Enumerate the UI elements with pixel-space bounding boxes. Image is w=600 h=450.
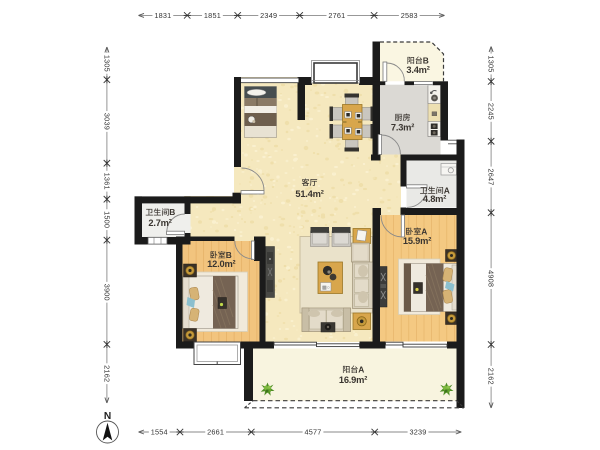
svg-text:2245: 2245 xyxy=(487,103,496,120)
svg-text:1305: 1305 xyxy=(487,55,496,72)
svg-text:4577: 4577 xyxy=(304,428,321,437)
svg-text:3900: 3900 xyxy=(102,284,111,301)
svg-text:7.3m²: 7.3m² xyxy=(391,122,414,132)
svg-text:12.0m²: 12.0m² xyxy=(207,259,235,269)
svg-text:2162: 2162 xyxy=(487,368,496,385)
svg-text:15.9m²: 15.9m² xyxy=(403,236,431,246)
svg-text:1305: 1305 xyxy=(102,55,111,72)
svg-text:51.4m²: 51.4m² xyxy=(295,189,323,199)
svg-text:2761: 2761 xyxy=(328,11,345,20)
svg-text:1851: 1851 xyxy=(204,11,221,20)
svg-text:B: B xyxy=(169,207,175,217)
svg-text:2583: 2583 xyxy=(401,11,418,20)
svg-text:2647: 2647 xyxy=(487,168,496,185)
svg-text:1361: 1361 xyxy=(102,173,111,190)
svg-text:16.9m²: 16.9m² xyxy=(339,375,367,385)
svg-text:3.4m²: 3.4m² xyxy=(406,65,429,75)
svg-text:A: A xyxy=(421,226,427,236)
svg-text:1500: 1500 xyxy=(102,211,111,228)
svg-text:1554: 1554 xyxy=(151,428,168,437)
svg-text:2661: 2661 xyxy=(207,428,224,437)
svg-text:3239: 3239 xyxy=(409,428,426,437)
svg-text:A: A xyxy=(358,364,364,374)
svg-text:2349: 2349 xyxy=(260,11,277,20)
svg-text:1831: 1831 xyxy=(154,11,171,20)
svg-text:4.8m²: 4.8m² xyxy=(423,194,446,204)
svg-text:2162: 2162 xyxy=(102,365,111,382)
svg-text:▩○: ▩○ xyxy=(322,285,330,291)
svg-text:3039: 3039 xyxy=(102,113,111,130)
svg-text:2.7m²: 2.7m² xyxy=(148,218,171,228)
svg-text:B: B xyxy=(423,55,429,65)
svg-text:4908: 4908 xyxy=(487,270,496,287)
